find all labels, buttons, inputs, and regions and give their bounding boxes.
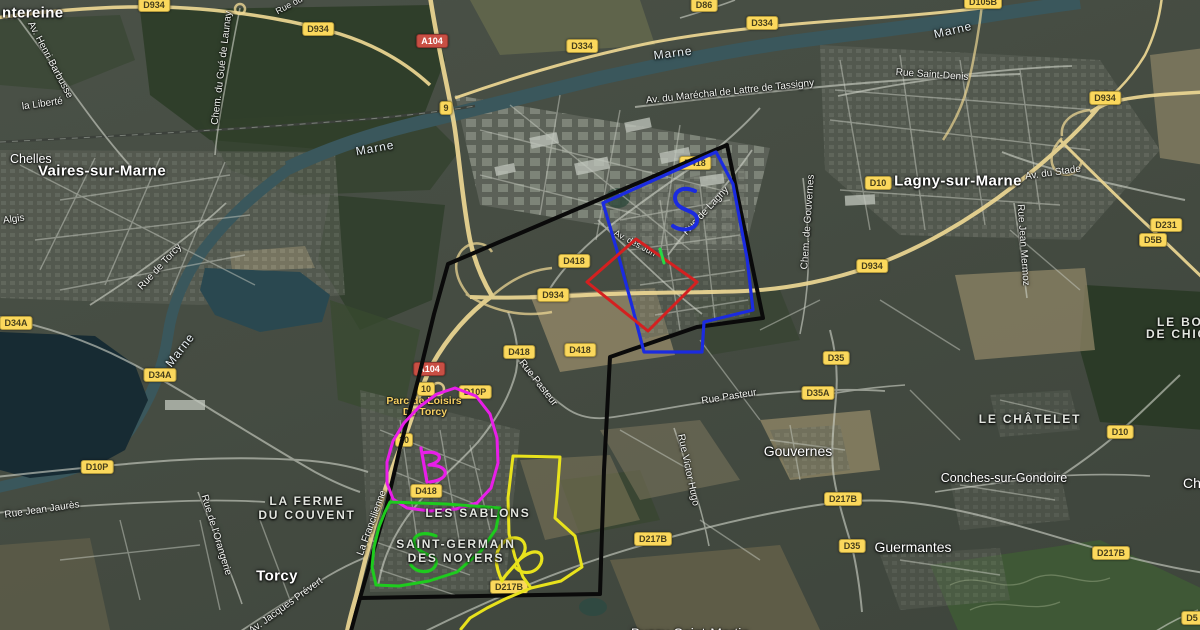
label-lagny-sur-marne: Lagny-sur-Marne <box>894 173 1022 190</box>
label-ntereine: ntereine <box>2 5 64 22</box>
label-chanteloup: Chanteloup <box>1183 475 1200 491</box>
label-bussy-saint-martin: Bussy-Saint-Martin <box>631 625 749 630</box>
label-des-noyers: DES NOYERS <box>408 551 505 565</box>
satellite-map[interactable]: D934D934A1049D334D86D334D105BD934D10D231… <box>0 0 1200 630</box>
label-du-couvent: DU COUVENT <box>258 508 355 522</box>
label-saint-germain: SAINT-GERMAIN <box>396 537 515 551</box>
label-torcy: Torcy <box>256 568 298 585</box>
label-gouvernes: Gouvernes <box>764 443 832 459</box>
label-la-ferme: LA FERME <box>269 494 344 508</box>
label-conches-sur-gondoire: Conches-sur-Gondoire <box>941 471 1067 485</box>
place-label-layer: ntereineChellesVaires-sur-MarneLagny-sur… <box>0 0 1200 630</box>
label-les-sablons: LES SABLONS <box>425 506 530 520</box>
label-de-chigny: DE CHIGNY <box>1146 327 1200 341</box>
label-vaires-sur-marne: Vaires-sur-Marne <box>38 163 166 180</box>
label-le-ch-telet: LE CHÂTELET <box>979 412 1081 426</box>
label-guermantes: Guermantes <box>874 539 951 555</box>
